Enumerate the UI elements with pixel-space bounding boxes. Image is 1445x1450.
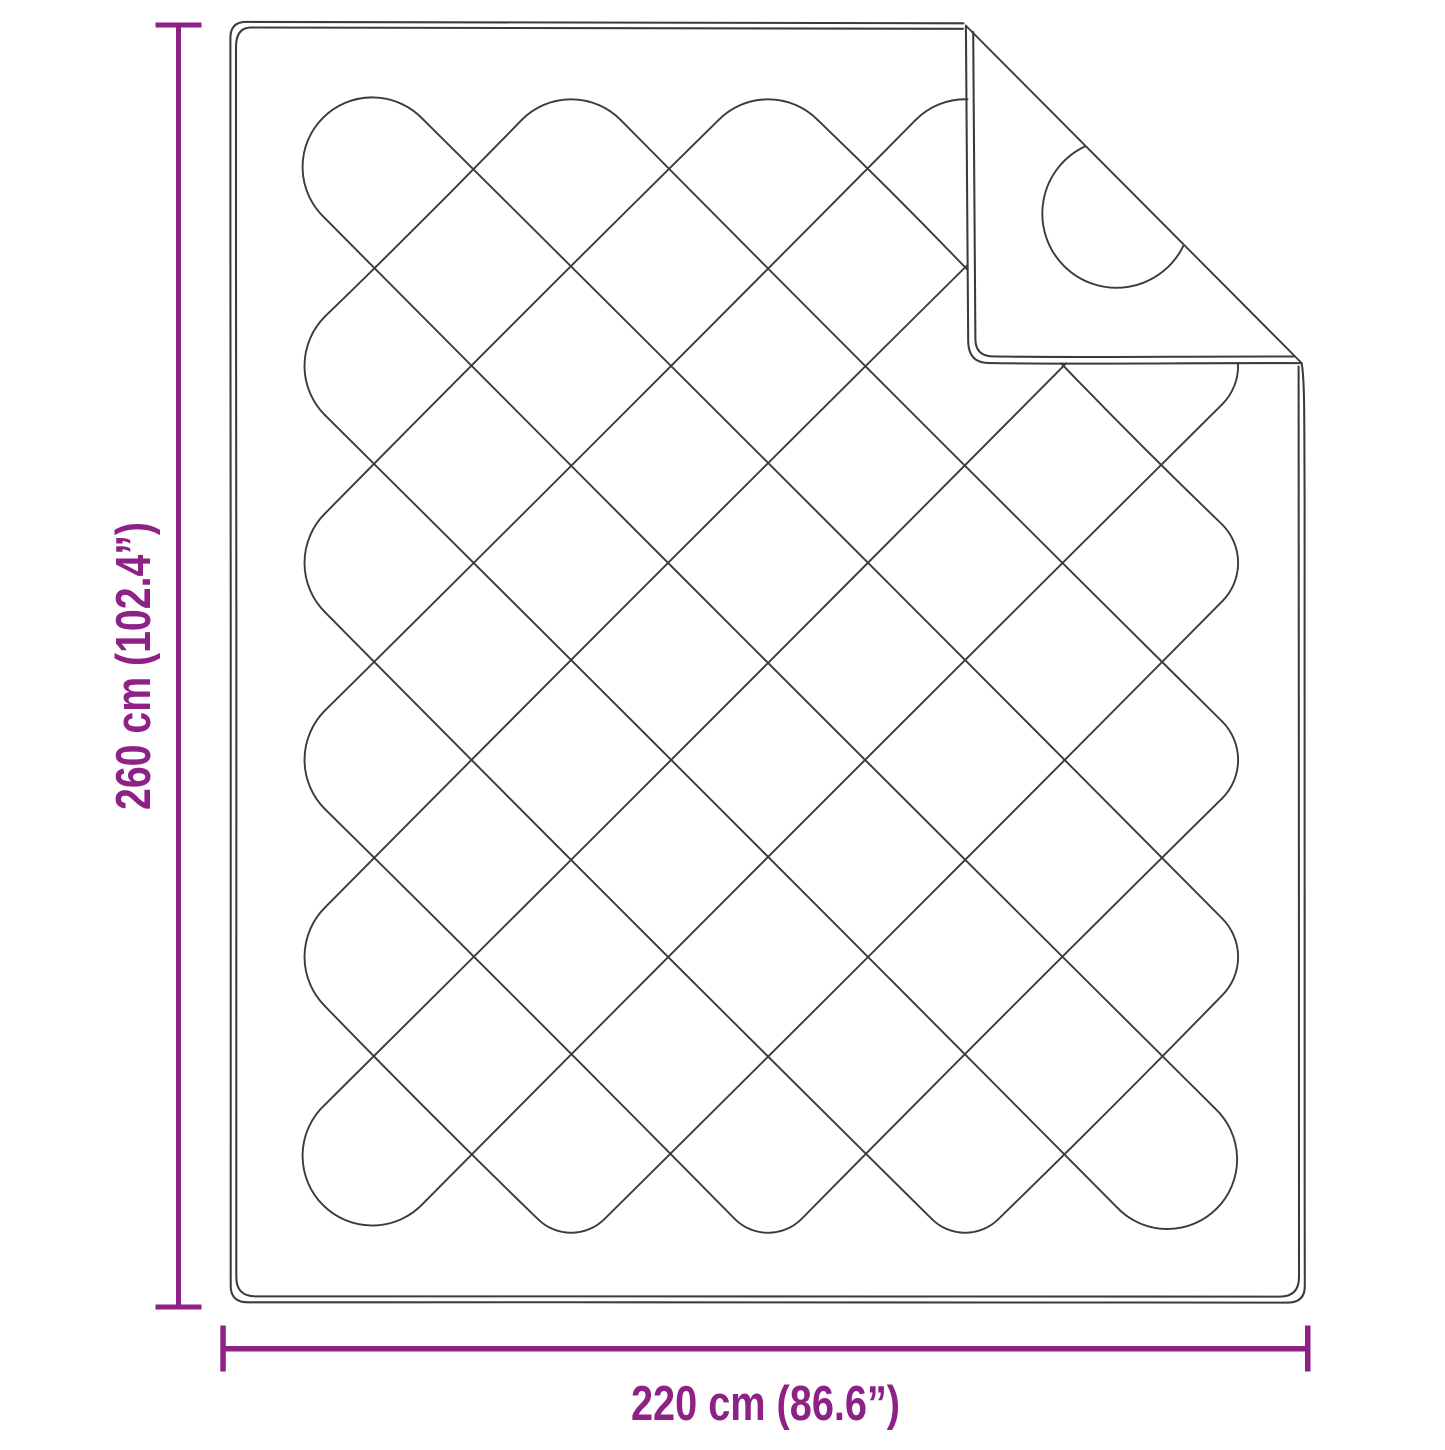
svg-text:260 cm (102.4”): 260 cm (102.4”) [107,522,161,810]
svg-text:220 cm (86.6”): 220 cm (86.6”) [631,1377,900,1431]
